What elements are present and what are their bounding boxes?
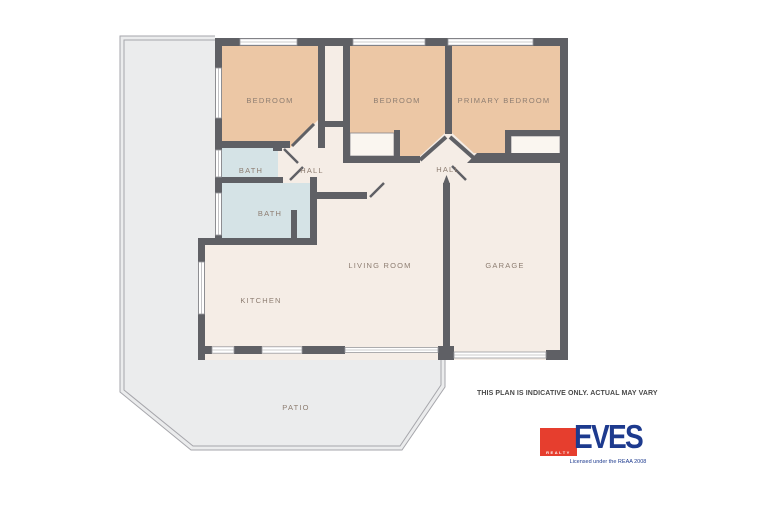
label-bedroom-1: BEDROOM [246, 96, 293, 105]
label-primary-bedroom: PRIMARY BEDROOM [458, 96, 551, 105]
label-bath-2: BATH [258, 209, 282, 218]
logo-tagline: Licensed under the REAA 2008 [568, 459, 648, 465]
closet-primary [511, 136, 560, 155]
label-bedroom-2: BEDROOM [373, 96, 420, 105]
brand-logo: REALTY EVES Licensed under the REAA 2008 [540, 426, 650, 468]
label-bath-1: BATH [239, 166, 263, 175]
logo-brand-text: EVES [574, 419, 642, 455]
logo-sub-label: REALTY [546, 449, 571, 456]
label-patio: PATIO [282, 403, 309, 412]
logo-red-square: REALTY [540, 428, 577, 456]
label-garage: GARAGE [485, 261, 524, 270]
floor-plan-svg: BEDROOM BEDROOM PRIMARY BEDROOM BATH BAT… [0, 0, 768, 512]
label-kitchen: KITCHEN [240, 296, 281, 305]
label-hall-right: HALL [436, 165, 460, 174]
label-hall-left: HALL [300, 166, 324, 175]
closet-bedroom-2 [350, 133, 394, 156]
disclaimer-text: THIS PLAN IS INDICATIVE ONLY. ACTUAL MAY… [477, 390, 667, 397]
label-living-room: LIVING ROOM [348, 261, 411, 270]
floor-plan-page: BEDROOM BEDROOM PRIMARY BEDROOM BATH BAT… [0, 0, 768, 512]
